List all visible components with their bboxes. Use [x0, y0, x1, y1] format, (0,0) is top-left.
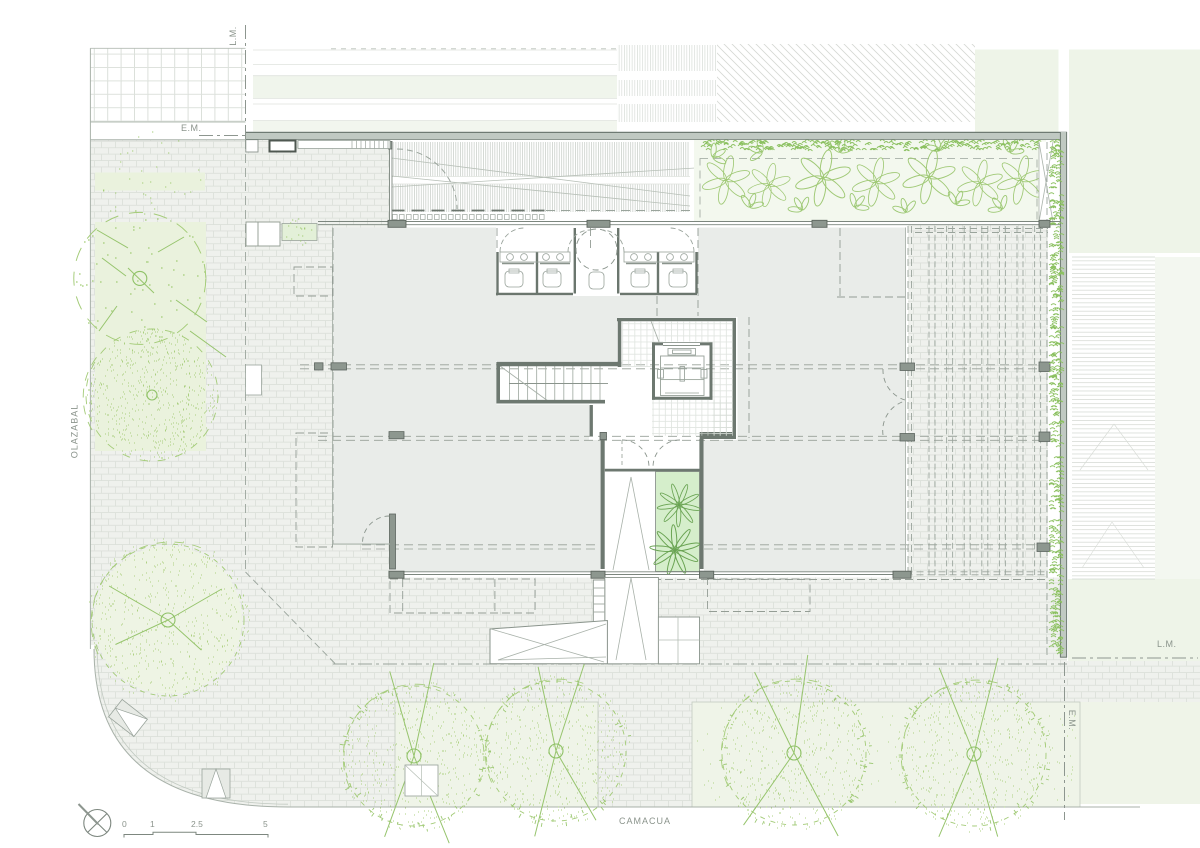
svg-text:OLAZABAL: OLAZABAL	[70, 404, 80, 459]
svg-text:1: 1	[150, 819, 155, 829]
svg-text:L.M.: L.M.	[1157, 639, 1177, 649]
svg-text:E.M.: E.M.	[181, 123, 202, 133]
svg-text:5: 5	[263, 819, 268, 829]
svg-text:CAMACUA: CAMACUA	[619, 816, 671, 826]
svg-text:L.M.: L.M.	[228, 26, 238, 46]
svg-text:0: 0	[122, 819, 127, 829]
svg-text:E.M.: E.M.	[1067, 710, 1077, 731]
svg-text:2.5: 2.5	[191, 819, 203, 829]
